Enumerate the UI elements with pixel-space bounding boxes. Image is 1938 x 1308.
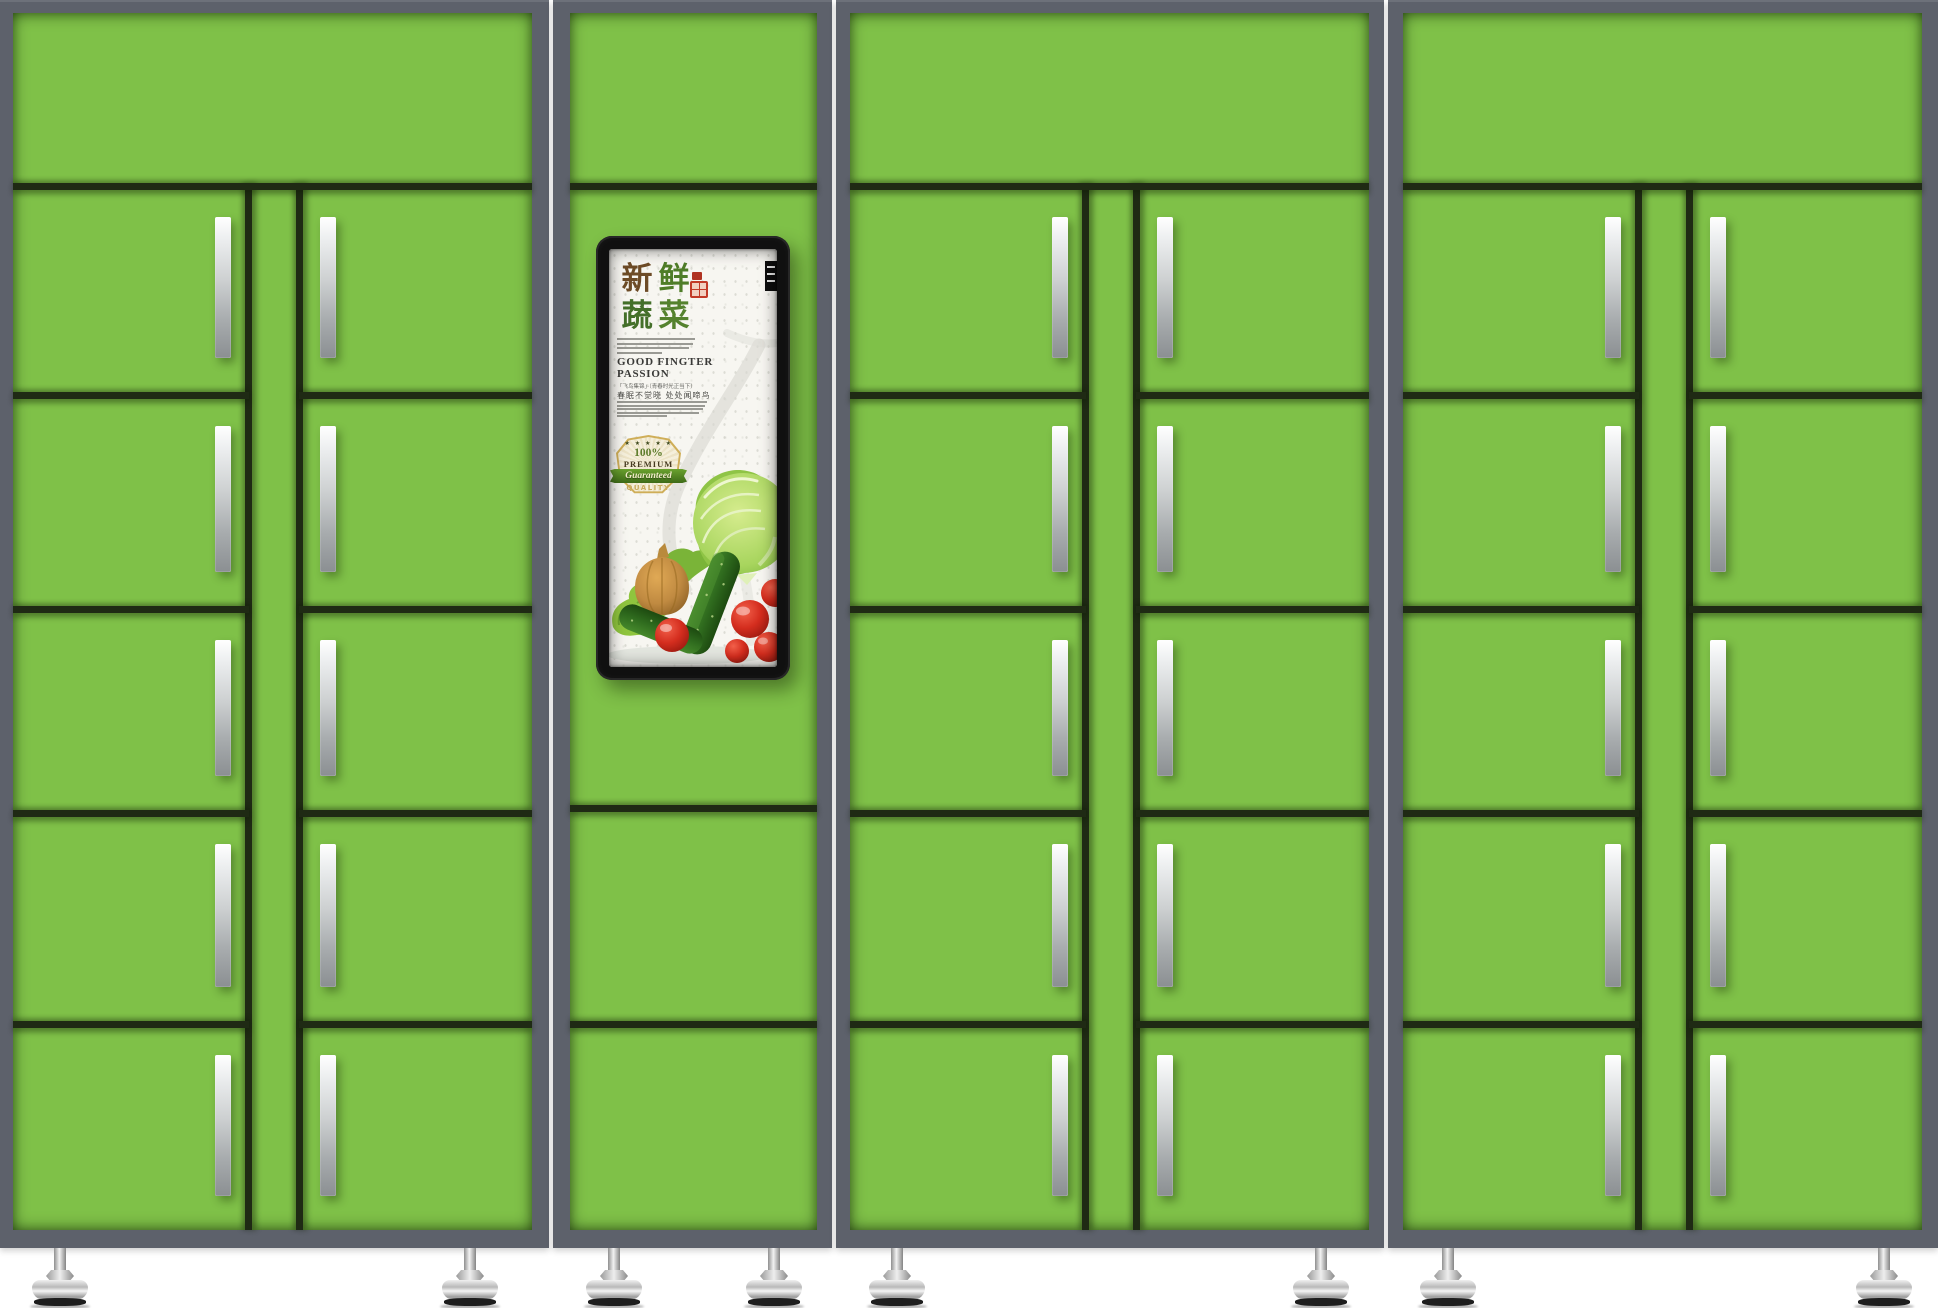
locker-door[interactable]	[1403, 613, 1635, 810]
door-handle[interactable]	[1605, 217, 1621, 358]
divider-line	[570, 805, 817, 812]
door-handle[interactable]	[1052, 1055, 1068, 1196]
cabinet-1-front	[13, 13, 532, 1230]
foot-disc	[32, 1280, 88, 1300]
red-seal-stamp	[690, 281, 708, 298]
foot-disc	[1856, 1280, 1912, 1300]
divider-line	[299, 392, 532, 399]
poster-heading: GOOD FINGTER PASSION	[617, 356, 713, 380]
door-handle[interactable]	[1605, 426, 1621, 572]
red-seal-small	[692, 272, 702, 280]
door-handle[interactable]	[1157, 640, 1173, 776]
center-divider-line	[1635, 183, 1642, 1230]
badge-percent: 100%	[610, 447, 687, 459]
leveling-foot	[584, 1248, 644, 1308]
door-handle[interactable]	[1052, 426, 1068, 572]
door-handle[interactable]	[320, 844, 336, 987]
foot-base	[871, 1298, 923, 1306]
door-handle[interactable]	[1157, 844, 1173, 987]
divider-line	[1136, 606, 1369, 613]
leveling-foot	[30, 1248, 90, 1308]
locker-door[interactable]	[1693, 817, 1922, 1021]
locker-door[interactable]	[303, 399, 532, 606]
leveling-foot	[1418, 1248, 1478, 1308]
badge-premium: PREMIUM	[610, 459, 687, 469]
leveling-foot	[440, 1248, 500, 1308]
divider-line	[850, 1021, 1086, 1028]
center-divider-line	[1133, 183, 1140, 1230]
foot-base	[1295, 1298, 1347, 1306]
divider-line	[570, 1021, 817, 1028]
advertising-screen[interactable]: 新 鲜 蔬 菜 GOOD FINGTER PASSION	[596, 236, 790, 680]
locker-door[interactable]	[1140, 1028, 1369, 1230]
locker-door[interactable]	[303, 1028, 532, 1230]
divider-line	[299, 1021, 532, 1028]
fine-print-block	[617, 338, 695, 356]
locker-door[interactable]	[303, 190, 532, 392]
locker-door[interactable]	[1403, 1028, 1635, 1230]
locker-door[interactable]	[850, 613, 1082, 810]
poster-poem: 春眠不觉晓 处处闻啼鸟	[617, 390, 711, 401]
locker-door[interactable]	[850, 817, 1082, 1021]
locker-door[interactable]	[1693, 613, 1922, 810]
divider-line	[13, 810, 249, 817]
leveling-foot	[744, 1248, 804, 1308]
door-handle[interactable]	[215, 640, 231, 776]
foot-disc	[1420, 1280, 1476, 1300]
foot-disc	[1293, 1280, 1349, 1300]
divider-line	[13, 606, 249, 613]
door-handle[interactable]	[1710, 844, 1726, 987]
divider-line	[1403, 183, 1922, 190]
top-panel	[850, 13, 1369, 183]
divider-line	[13, 392, 249, 399]
cabinet-4-front	[1403, 13, 1922, 1230]
cabinet-1	[0, 0, 549, 1248]
door-handle[interactable]	[215, 1055, 231, 1196]
title-char: 蔬	[620, 299, 654, 333]
top-panel	[13, 13, 532, 183]
cabinet-3	[836, 0, 1384, 1248]
locker-door[interactable]	[1140, 190, 1369, 392]
divider-line	[850, 606, 1086, 613]
divider-line	[1403, 606, 1639, 613]
top-panel	[570, 13, 817, 183]
divider-line	[570, 183, 817, 190]
poster: 新 鲜 蔬 菜 GOOD FINGTER PASSION	[609, 249, 777, 667]
locker-door[interactable]	[13, 399, 245, 606]
locker-door[interactable]	[850, 1028, 1082, 1230]
locker-door[interactable]	[570, 812, 817, 1021]
foot-disc	[586, 1280, 642, 1300]
title-char: 鲜	[657, 262, 691, 296]
cabinet-4	[1388, 0, 1938, 1248]
divider-line	[299, 810, 532, 817]
divider-line	[1689, 810, 1922, 817]
locker-door[interactable]	[1693, 1028, 1922, 1230]
locker-door[interactable]	[1403, 190, 1635, 392]
center-divider-line	[1082, 183, 1089, 1230]
door-handle[interactable]	[320, 426, 336, 572]
center-divider-line	[296, 183, 303, 1230]
divider-line	[850, 810, 1086, 817]
locker-door[interactable]	[850, 190, 1082, 392]
divider-line	[299, 606, 532, 613]
foot-disc	[746, 1280, 802, 1300]
center-divider-line	[245, 183, 252, 1230]
foot-base	[748, 1298, 800, 1306]
door-handle[interactable]	[1052, 844, 1068, 987]
locker-door[interactable]	[1403, 817, 1635, 1021]
locker-door[interactable]	[1693, 399, 1922, 606]
door-handle[interactable]	[1157, 1055, 1173, 1196]
foot-base	[34, 1298, 86, 1306]
door-handle[interactable]	[320, 1055, 336, 1196]
door-handle[interactable]	[1052, 217, 1068, 358]
locker-door[interactable]	[13, 613, 245, 810]
locker-door[interactable]	[303, 817, 532, 1021]
leveling-foot	[867, 1248, 927, 1308]
divider-line	[1136, 392, 1369, 399]
divider-line	[1689, 392, 1922, 399]
door-handle[interactable]	[1052, 640, 1068, 776]
poster-title: 新 鲜 蔬 菜	[620, 262, 691, 333]
cabinet-3-front	[850, 13, 1369, 1230]
poster-heading-line1: GOOD FINGTER	[617, 356, 713, 368]
door-handle[interactable]	[320, 217, 336, 358]
divider-line	[1136, 1021, 1369, 1028]
leveling-foot	[1291, 1248, 1351, 1308]
fine-print-block	[617, 401, 707, 419]
locker-door[interactable]	[570, 1028, 817, 1230]
divider-line	[850, 183, 1369, 190]
badge-stars: ★ ★ ★ ★ ★	[610, 440, 687, 447]
locker-door[interactable]	[850, 399, 1082, 606]
foot-base	[588, 1298, 640, 1306]
locker-door[interactable]	[1140, 399, 1369, 606]
door-handle[interactable]	[215, 217, 231, 358]
title-char: 菜	[657, 299, 691, 333]
title-char: 新	[620, 262, 654, 296]
divider-line	[13, 183, 532, 190]
locker-door[interactable]	[1140, 613, 1369, 810]
locker-door[interactable]	[13, 1028, 245, 1230]
door-handle[interactable]	[1710, 640, 1726, 776]
center-divider-line	[1686, 183, 1693, 1230]
locker-door[interactable]	[13, 190, 245, 392]
cabinet-2: 新 鲜 蔬 菜 GOOD FINGTER PASSION	[553, 0, 832, 1248]
divider-line	[1689, 1021, 1922, 1028]
quality-badge: ★ ★ ★ ★ ★ 100% PREMIUM Guaranteed QUALIT…	[610, 435, 687, 501]
poster-heading-line2: PASSION	[617, 368, 713, 380]
door-handle[interactable]	[1605, 1055, 1621, 1196]
divider-line	[1403, 810, 1639, 817]
foot-disc	[442, 1280, 498, 1300]
cabinet-2-front: 新 鲜 蔬 菜 GOOD FINGTER PASSION	[570, 13, 817, 1230]
badge-quality: QUALITY	[610, 484, 687, 492]
door-handle[interactable]	[215, 426, 231, 572]
locker-door[interactable]	[1140, 817, 1369, 1021]
locker-door[interactable]	[303, 613, 532, 810]
divider-line	[1136, 810, 1369, 817]
divider-line	[850, 392, 1086, 399]
foot-base	[444, 1298, 496, 1306]
divider-line	[13, 1021, 249, 1028]
door-handle[interactable]	[1157, 426, 1173, 572]
top-panel	[1403, 13, 1922, 183]
badge-ribbon: Guaranteed	[610, 469, 687, 483]
foot-disc	[869, 1280, 925, 1300]
locker-scene: 新 鲜 蔬 菜 GOOD FINGTER PASSION	[0, 0, 1938, 1308]
door-handle[interactable]	[1710, 1055, 1726, 1196]
door-handle[interactable]	[1605, 640, 1621, 776]
door-handle[interactable]	[1710, 426, 1726, 572]
leveling-foot	[1854, 1248, 1914, 1308]
door-handle[interactable]	[215, 844, 231, 987]
locker-door[interactable]	[1403, 399, 1635, 606]
poster-subtitle: 「飞鸟集锦」·〔青春时光正当下〕	[617, 382, 696, 390]
locker-door[interactable]	[13, 817, 245, 1021]
divider-line	[1689, 606, 1922, 613]
divider-line	[1403, 392, 1639, 399]
divider-line	[1403, 1021, 1639, 1028]
door-handle[interactable]	[1157, 217, 1173, 358]
foot-base	[1422, 1298, 1474, 1306]
door-handle[interactable]	[1605, 844, 1621, 987]
corner-tag	[765, 261, 777, 291]
locker-door[interactable]	[1693, 190, 1922, 392]
foot-base	[1858, 1298, 1910, 1306]
door-handle[interactable]	[320, 640, 336, 776]
door-handle[interactable]	[1710, 217, 1726, 358]
